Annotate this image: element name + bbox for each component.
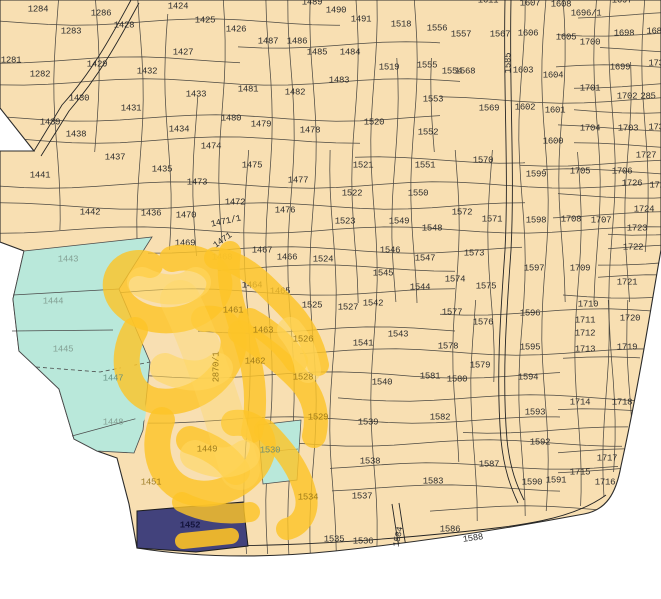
map-base-layer: [0, 0, 661, 599]
selected-parcel[interactable]: [137, 502, 248, 552]
cadastral-map[interactable]: 1284128612831281128214241425142614281427…: [0, 0, 661, 599]
